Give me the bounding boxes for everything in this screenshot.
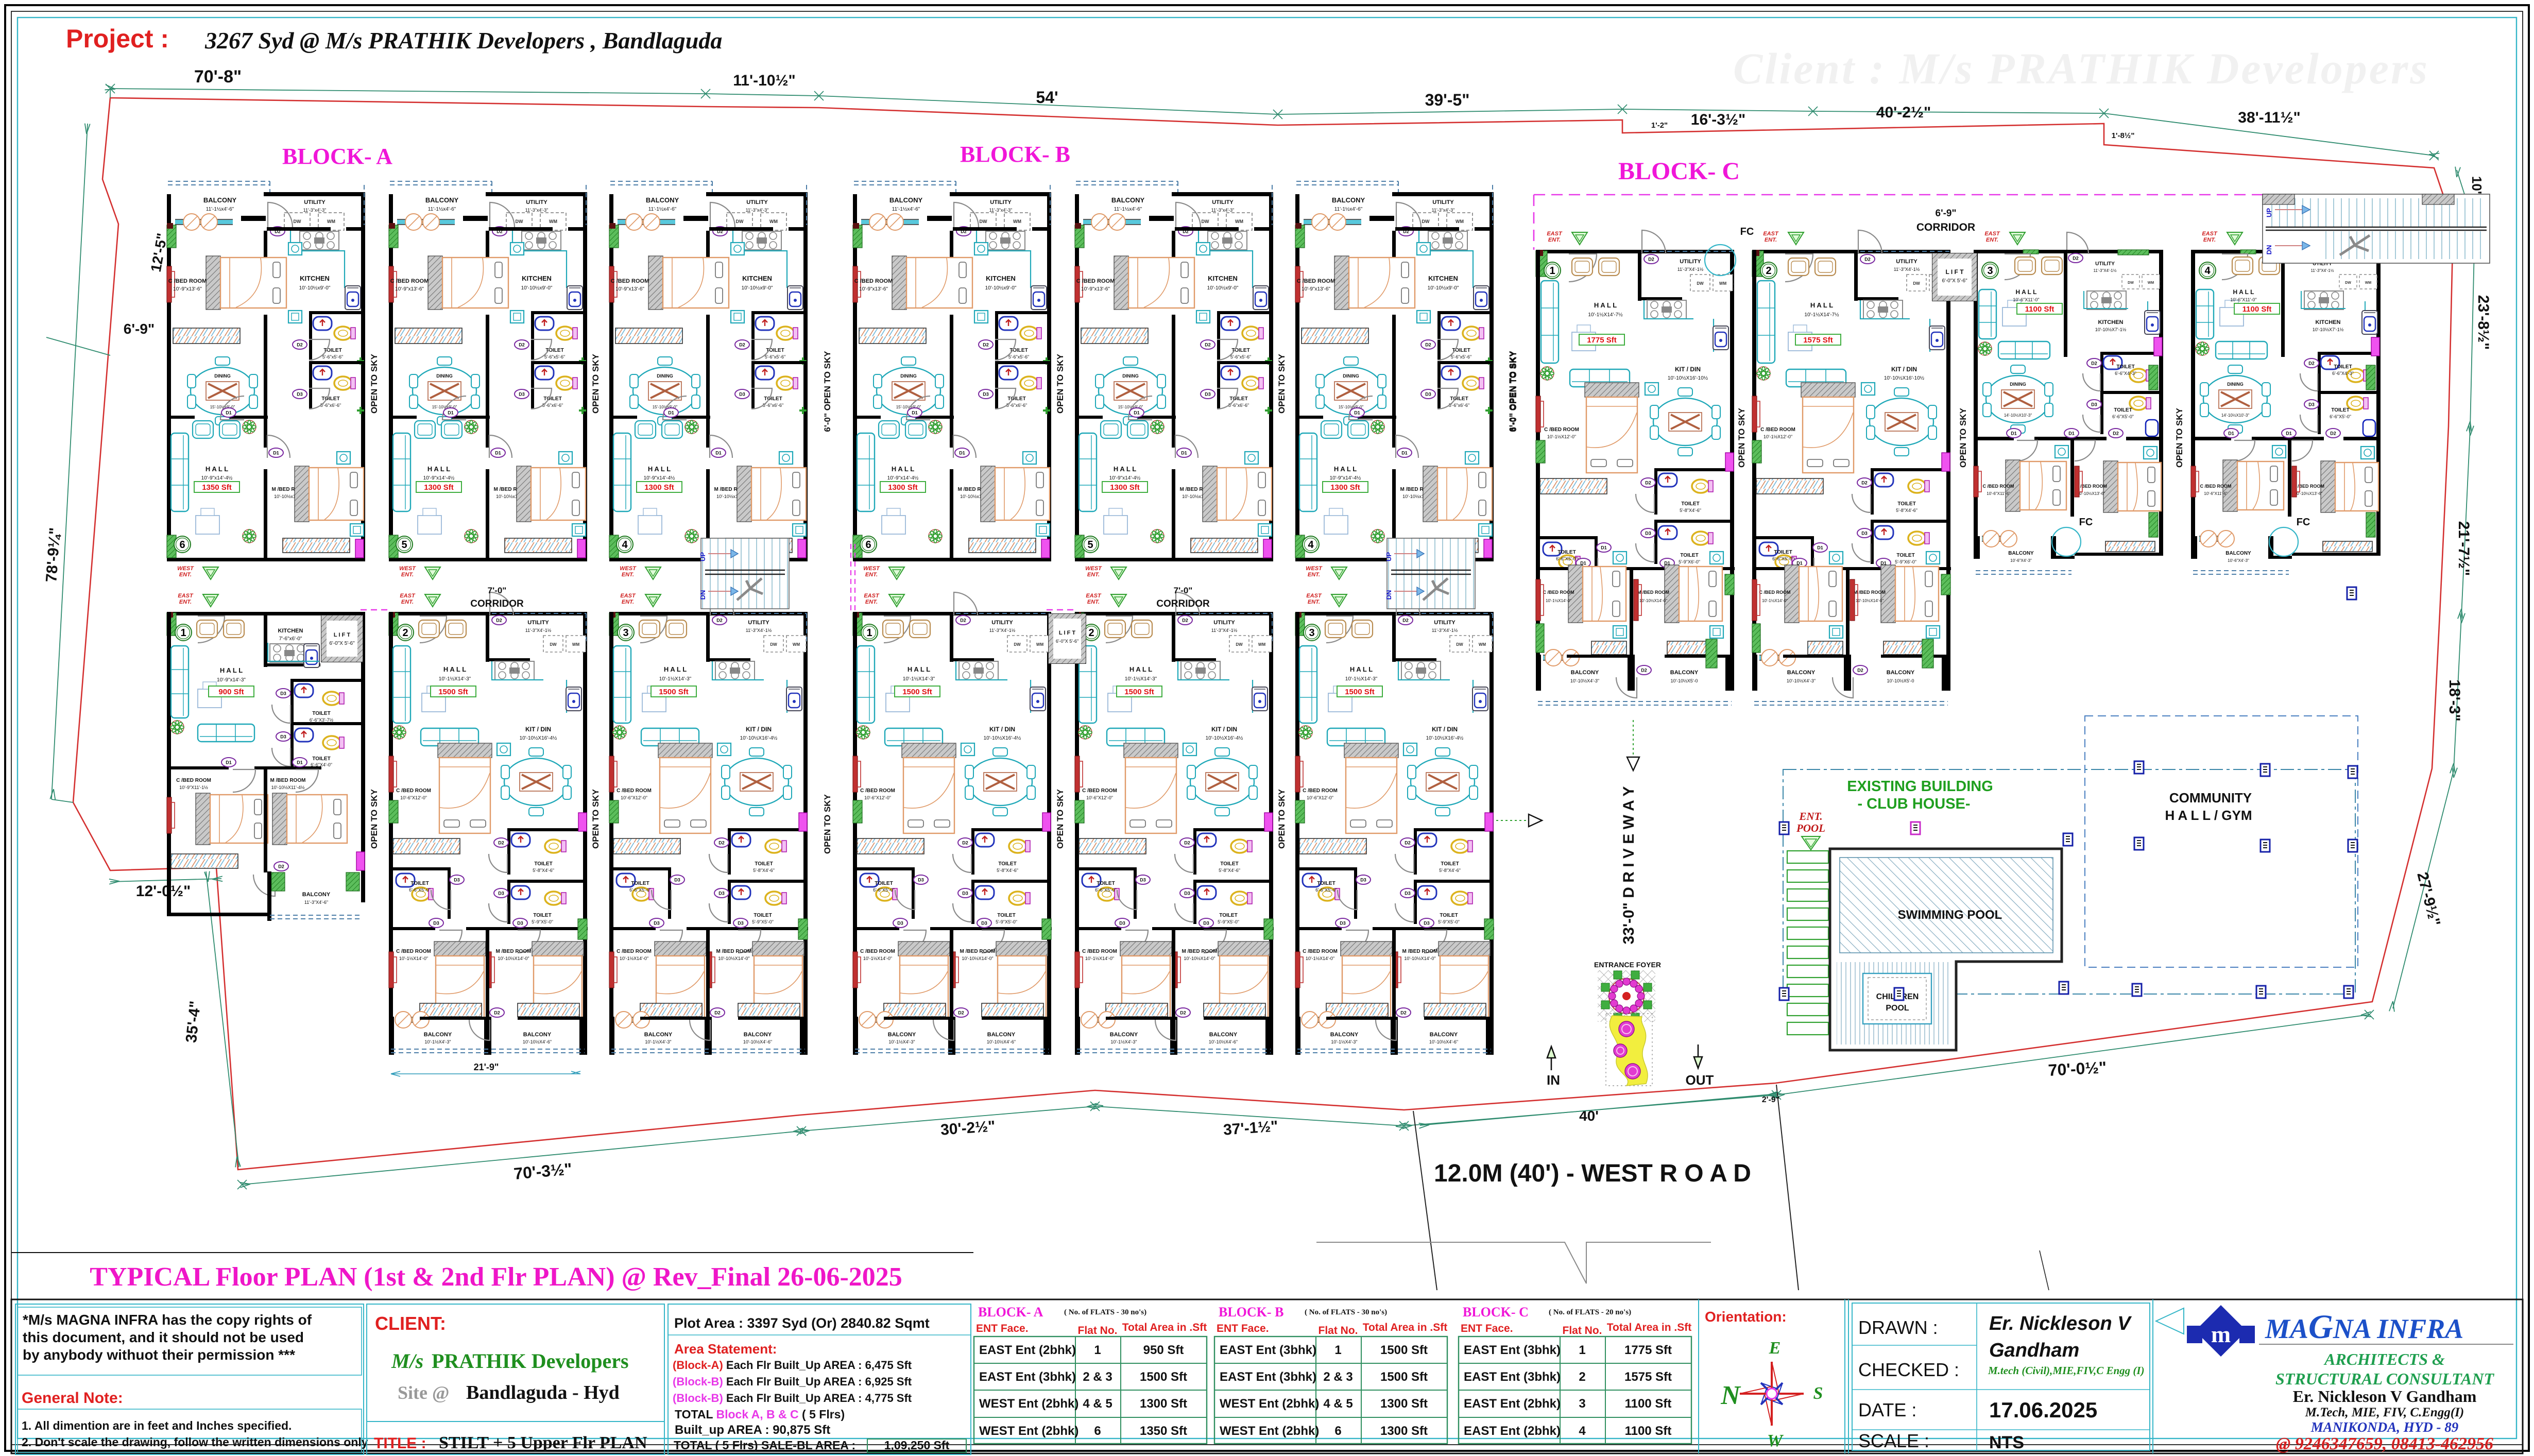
svg-text:( No. of FLATS - 30 no's): ( No. of FLATS - 30 no's) — [1305, 1308, 1387, 1316]
svg-text:EXISTING BUILDING: EXISTING BUILDING — [1847, 778, 1993, 795]
svg-text:17.06.2025: 17.06.2025 — [1989, 1398, 2097, 1422]
svg-text:1500 Sft: 1500 Sft — [1140, 1370, 1187, 1384]
svg-text:CLIENT:: CLIENT: — [375, 1313, 446, 1334]
svg-text:OPEN TO SKY: OPEN TO SKY — [591, 353, 601, 414]
svg-text:ENT.: ENT. — [401, 599, 414, 605]
svg-text:OUT: OUT — [1686, 1072, 1714, 1088]
svg-text:ENT.: ENT. — [622, 572, 634, 578]
svg-text:EAST Ent (2bhk): EAST Ent (2bhk) — [1464, 1397, 1561, 1411]
svg-text:1300 Sft: 1300 Sft — [1330, 483, 1360, 492]
svg-text:ENT.: ENT. — [2203, 237, 2216, 243]
svg-text:3: 3 — [1579, 1397, 1585, 1411]
svg-text:5: 5 — [401, 539, 407, 551]
svg-text:4: 4 — [1579, 1424, 1586, 1438]
svg-text:ENT.: ENT. — [865, 599, 878, 605]
svg-text:1500 Sft: 1500 Sft — [438, 688, 468, 696]
svg-text:BLOCK- C: BLOCK- C — [1463, 1305, 1529, 1320]
svg-text:EAST: EAST — [178, 593, 194, 599]
svg-text:ENT Face.: ENT Face. — [976, 1323, 1029, 1334]
svg-text:1500 Sft: 1500 Sft — [659, 688, 689, 696]
svg-text:ENT Face.: ENT Face. — [1461, 1323, 1513, 1334]
svg-text:EAST: EAST — [1086, 593, 1102, 599]
svg-text:3: 3 — [1309, 627, 1314, 639]
svg-text:S: S — [1813, 1384, 1823, 1403]
svg-text:WEST: WEST — [863, 566, 880, 572]
svg-text:FC: FC — [2297, 517, 2310, 528]
svg-text:Plot Area : 3397 Syd (Or) 2: Plot Area : 3397 Syd (Or) 2840.82 Sqmt — [674, 1315, 930, 1331]
svg-text:4 & 5: 4 & 5 — [1083, 1397, 1112, 1411]
svg-text:WEST Ent (2bhk): WEST Ent (2bhk) — [1220, 1397, 1319, 1411]
svg-text:EAST Ent (3bhk): EAST Ent (3bhk) — [1464, 1370, 1561, 1384]
svg-text:1. All dimention are in feet a: 1. All dimention are in feet and Inches … — [22, 1419, 292, 1432]
svg-text:FC: FC — [2079, 517, 2093, 528]
svg-text:1300 Sft: 1300 Sft — [1380, 1397, 1428, 1411]
svg-text:Total Area in .Sft: Total Area in .Sft — [1607, 1322, 1692, 1333]
svg-text:OPEN TO SKY: OPEN TO SKY — [1737, 407, 1747, 468]
svg-text:Site @: Site @ — [398, 1382, 449, 1403]
svg-text:1500 Sft: 1500 Sft — [1124, 688, 1154, 696]
svg-text:OPEN TO SKY: OPEN TO SKY — [591, 789, 601, 849]
svg-text:SWIMMING POOL: SWIMMING POOL — [1898, 908, 2002, 922]
svg-text:54': 54' — [1036, 88, 1058, 107]
svg-text:TYPICAL Floor PLAN (1st & 2n: TYPICAL Floor PLAN (1st & 2nd Flr PLAN) … — [90, 1262, 902, 1292]
svg-text:21'-9": 21'-9" — [474, 1062, 499, 1072]
svg-text:POOL: POOL — [1796, 822, 1825, 834]
svg-text:TITLE :: TITLE : — [374, 1435, 426, 1452]
svg-text:1775 Sft: 1775 Sft — [1624, 1343, 1672, 1357]
svg-text:1: 1 — [1334, 1343, 1341, 1357]
svg-text:6'-0" OPEN TO SKY: 6'-0" OPEN TO SKY — [1508, 351, 1517, 432]
svg-text:Orientation:: Orientation: — [1705, 1309, 1787, 1325]
svg-text:WEST: WEST — [177, 566, 194, 572]
svg-text:1: 1 — [1549, 265, 1555, 277]
svg-text:H A L L / GYM: H A L L / GYM — [2165, 808, 2252, 823]
svg-text:6: 6 — [865, 539, 871, 551]
svg-text:OPEN TO SKY: OPEN TO SKY — [1055, 353, 1065, 414]
svg-text:70'-0½": 70'-0½" — [2048, 1058, 2107, 1080]
svg-text:1: 1 — [1579, 1343, 1585, 1357]
svg-text:BLOCK- B: BLOCK- B — [960, 142, 1070, 167]
svg-text:POOL: POOL — [1886, 1004, 1909, 1013]
svg-text:CORRIDOR: CORRIDOR — [1156, 598, 1210, 609]
svg-text:Total Area in .Sft: Total Area in .Sft — [1122, 1322, 1207, 1333]
svg-text:3: 3 — [1987, 265, 1993, 277]
svg-text:ENT.: ENT. — [1765, 237, 1777, 243]
svg-text:2: 2 — [402, 627, 408, 639]
svg-text:1775 Sft: 1775 Sft — [1587, 336, 1617, 345]
svg-text:- CLUB HOUSE-: - CLUB HOUSE- — [1857, 796, 1970, 812]
svg-text:2 & 3: 2 & 3 — [1323, 1370, 1352, 1384]
svg-text:EAST Ent (3bhk): EAST Ent (3bhk) — [1220, 1370, 1316, 1384]
svg-text:MAGNA INFRA: MAGNA INFRA — [2265, 1308, 2463, 1346]
svg-text:6: 6 — [1094, 1424, 1101, 1438]
svg-text:OPEN TO SKY: OPEN TO SKY — [1277, 789, 1287, 849]
svg-text:BLOCK- A: BLOCK- A — [282, 144, 392, 169]
svg-text:21'-7½": 21'-7½" — [2455, 521, 2472, 576]
svg-text:EAST: EAST — [1763, 231, 1779, 237]
svg-text:ENT.: ENT. — [1087, 572, 1100, 578]
svg-text:1100 Sft: 1100 Sft — [2242, 305, 2272, 314]
svg-text:Project :: Project : — [66, 24, 169, 53]
svg-text:ENT.: ENT. — [1986, 237, 1998, 243]
svg-text:Bandlaguda - Hyd: Bandlaguda - Hyd — [466, 1382, 620, 1403]
svg-text:OPEN TO SKY: OPEN TO SKY — [1958, 407, 1968, 468]
svg-text:ENT.: ENT. — [1087, 599, 1100, 605]
svg-text:PRATHIK Developers: PRATHIK Developers — [432, 1349, 629, 1373]
svg-text:ENT.: ENT. — [1308, 572, 1320, 578]
svg-text:EAST: EAST — [400, 593, 416, 599]
svg-text:1500 Sft: 1500 Sft — [1380, 1343, 1428, 1357]
svg-text:CHECKED :: CHECKED : — [1858, 1359, 1959, 1380]
svg-text:ENTRANCE FOYER: ENTRANCE FOYER — [1594, 961, 1661, 969]
svg-text:7'-0": 7'-0" — [488, 586, 507, 595]
svg-text:WEST: WEST — [620, 566, 637, 572]
svg-text:DRAWN :: DRAWN : — [1858, 1317, 1938, 1338]
svg-text:EAST: EAST — [864, 593, 880, 599]
svg-text:1100 Sft: 1100 Sft — [1625, 1424, 1672, 1438]
svg-text:WEST Ent (2bhk): WEST Ent (2bhk) — [979, 1424, 1078, 1438]
svg-text:*M/s MAGNA INFRA has the copy: *M/s MAGNA INFRA has the copy rights of — [23, 1312, 312, 1328]
svg-text:(Block-A) Each Flr Built_Up AR: (Block-A) Each Flr Built_Up AREA : 6,475… — [673, 1359, 912, 1372]
svg-text:1: 1 — [1094, 1343, 1101, 1357]
svg-text:4 & 5: 4 & 5 — [1323, 1397, 1352, 1411]
svg-text:1300 Sft: 1300 Sft — [424, 483, 454, 492]
svg-text:M.Tech, MIE, FIV, C.Engg(I): M.Tech, MIE, FIV, C.Engg(I) — [2305, 1406, 2464, 1419]
svg-text:1: 1 — [866, 627, 872, 639]
svg-text:WEST: WEST — [399, 566, 416, 572]
svg-text:WEST Ent (2bhk): WEST Ent (2bhk) — [1220, 1424, 1319, 1438]
svg-text:6: 6 — [179, 539, 185, 551]
svg-text:1500 Sft: 1500 Sft — [1345, 688, 1375, 696]
svg-text:WEST: WEST — [1306, 566, 1323, 572]
svg-text:Built_up AREA : 90,875 Sft: Built_up AREA : 90,875 Sft — [675, 1423, 830, 1437]
svg-text:m: m — [2211, 1321, 2231, 1347]
svg-text:FC: FC — [1740, 226, 1754, 237]
svg-text:1300 Sft: 1300 Sft — [1110, 483, 1140, 492]
svg-text:EAST: EAST — [620, 593, 636, 599]
svg-text:6'-9": 6'-9" — [1936, 208, 1957, 219]
svg-text:ENT.: ENT. — [865, 572, 878, 578]
svg-text:2: 2 — [1766, 265, 1771, 277]
svg-text:Flat No.: Flat No. — [1563, 1325, 1602, 1337]
svg-text:this document, and it should n: this document, and it should not be used — [23, 1329, 304, 1345]
svg-text:6: 6 — [1334, 1424, 1341, 1438]
svg-text:EAST Ent (2bhk): EAST Ent (2bhk) — [1464, 1424, 1561, 1438]
svg-text:(Block-B) Each Flr Built_Up AR: (Block-B) Each Flr Built_Up AREA : 4,775… — [673, 1392, 912, 1404]
svg-text:EAST: EAST — [2202, 231, 2218, 237]
svg-text:16'-3½": 16'-3½" — [1691, 111, 1745, 128]
svg-text:2: 2 — [1088, 627, 1094, 639]
svg-text:OPEN TO SKY: OPEN TO SKY — [1055, 789, 1065, 849]
svg-text:by anybody withuot their permi: by anybody withuot their permission *** — [23, 1347, 295, 1363]
svg-text:ENT.: ENT. — [401, 572, 414, 578]
svg-text:EAST Ent (3bhk): EAST Ent (3bhk) — [979, 1370, 1076, 1384]
svg-text:BLOCK- C: BLOCK- C — [1618, 158, 1740, 185]
svg-text:6'-0"X 5'-6": 6'-0"X 5'-6" — [1056, 639, 1078, 644]
svg-text:EAST Ent (3bhk): EAST Ent (3bhk) — [1464, 1343, 1561, 1357]
svg-text:1500 Sft: 1500 Sft — [1380, 1370, 1428, 1384]
svg-text:Gandham: Gandham — [1989, 1340, 2079, 1361]
svg-text:3: 3 — [623, 627, 628, 639]
svg-text:Er. Nickleson V Gandham: Er. Nickleson V Gandham — [2293, 1387, 2477, 1406]
svg-text:6'-0" OPEN TO SKY: 6'-0" OPEN TO SKY — [823, 351, 832, 432]
svg-text:4: 4 — [1308, 539, 1314, 551]
svg-text:TOTAL ( 5 Flrs) SALE-BL AREA :: TOTAL ( 5 Flrs) SALE-BL AREA : — [674, 1438, 855, 1452]
svg-text:OPEN TO SKY: OPEN TO SKY — [369, 789, 379, 849]
svg-text:2: 2 — [1579, 1370, 1585, 1384]
svg-text:Client : M/s PRATHIK Developer: Client : M/s PRATHIK Developers — [1733, 44, 2429, 93]
svg-text:40'-2½": 40'-2½" — [1876, 104, 1931, 121]
svg-text:1350 Sft: 1350 Sft — [1140, 1424, 1187, 1438]
svg-text:1100 Sft: 1100 Sft — [1625, 1397, 1672, 1411]
svg-text:( No. of FLATS - 20 no's): ( No. of FLATS - 20 no's) — [1549, 1308, 1631, 1316]
svg-text:L I F T: L I F T — [1059, 630, 1075, 636]
svg-text:WEST Ent (2bhk): WEST Ent (2bhk) — [979, 1397, 1078, 1411]
svg-text:900 Sft: 900 Sft — [218, 688, 244, 696]
svg-text:6'-9": 6'-9" — [124, 321, 155, 337]
svg-text:5: 5 — [1087, 539, 1093, 551]
svg-text:OPEN TO SKY: OPEN TO SKY — [369, 353, 379, 414]
svg-text:@ 9246347659, 08413-462956: @ 9246347659, 08413-462956 — [2276, 1434, 2493, 1453]
svg-text:1575 Sft: 1575 Sft — [1624, 1370, 1672, 1384]
svg-text:(Block-B) Each Flr Built_Up AR: (Block-B) Each Flr Built_Up AREA : 6,925… — [673, 1375, 912, 1388]
svg-text:12.0M (40') - WEST R O A D: 12.0M (40') - WEST R O A D — [1434, 1160, 1751, 1187]
svg-text:COMMUNITY: COMMUNITY — [2169, 790, 2252, 806]
svg-text:Er. Nickleson V: Er. Nickleson V — [1989, 1313, 2132, 1334]
svg-text:950 Sft: 950 Sft — [1143, 1343, 1184, 1357]
svg-text:General Note:: General Note: — [22, 1390, 123, 1407]
svg-text:33'-0" D R I V E W A Y: 33'-0" D R I V E W A Y — [1620, 786, 1637, 945]
svg-text:7'-0": 7'-0" — [1174, 586, 1193, 595]
svg-text:1500 Sft: 1500 Sft — [902, 688, 932, 696]
svg-text:ENT Face.: ENT Face. — [1217, 1323, 1269, 1334]
svg-text:18'-3": 18'-3" — [2446, 679, 2463, 721]
svg-text:CORRIDOR: CORRIDOR — [470, 598, 524, 609]
svg-text:SCALE :: SCALE : — [1858, 1430, 1929, 1451]
svg-text:BLOCK- A: BLOCK- A — [978, 1305, 1043, 1320]
svg-text:12'-0½": 12'-0½" — [136, 883, 191, 900]
svg-text:38'-11½": 38'-11½" — [2238, 109, 2300, 126]
svg-text:ENT.: ENT. — [1548, 237, 1561, 243]
svg-text:Area Statement:: Area Statement: — [674, 1341, 777, 1357]
svg-text:ENT.: ENT. — [179, 572, 192, 578]
svg-text:ENT.: ENT. — [179, 599, 192, 605]
svg-text:Flat No.: Flat No. — [1078, 1325, 1118, 1337]
svg-text:1350 Sft: 1350 Sft — [202, 483, 232, 492]
svg-text:WEST: WEST — [1085, 566, 1102, 572]
svg-text:OPEN TO SKY: OPEN TO SKY — [2175, 407, 2184, 468]
svg-text:( No. of FLATS - 30 no's): ( No. of FLATS - 30 no's) — [1064, 1308, 1146, 1316]
svg-text:11'-10½": 11'-10½" — [733, 72, 795, 89]
svg-text:OPEN TO SKY: OPEN TO SKY — [1277, 353, 1287, 414]
svg-text:2 & 3: 2 & 3 — [1083, 1370, 1112, 1384]
svg-text:MANIKONDA, HYD - 89: MANIKONDA, HYD - 89 — [2310, 1419, 2459, 1435]
svg-text:Total Area in .Sft: Total Area in .Sft — [1363, 1322, 1448, 1333]
svg-text:BLOCK- B: BLOCK- B — [1219, 1305, 1283, 1320]
svg-text:4: 4 — [622, 539, 628, 551]
svg-text:OPEN TO SKY: OPEN TO SKY — [823, 794, 832, 854]
svg-text:M.tech (Civil),MIE,FIV,C Engg: M.tech (Civil),MIE,FIV,C Engg (I) — [1988, 1364, 2145, 1377]
svg-text:70'-8": 70'-8" — [194, 67, 242, 87]
svg-text:TOTAL Block A, B & C ( 5 Flrs): TOTAL Block A, B & C ( 5 Flrs) — [675, 1408, 845, 1421]
svg-text:6'-0"X 5'-6": 6'-0"X 5'-6" — [1942, 278, 1967, 284]
svg-text:2. Don't scale the drawing, fo: 2. Don't scale the drawing, follow the w… — [22, 1435, 368, 1449]
svg-text:Flat No.: Flat No. — [1319, 1325, 1358, 1337]
svg-text:ENT.: ENT. — [1308, 599, 1320, 605]
svg-text:39'-5": 39'-5" — [1425, 91, 1470, 109]
svg-text:1300 Sft: 1300 Sft — [1140, 1397, 1187, 1411]
svg-text:IN: IN — [1547, 1072, 1560, 1088]
svg-text:1: 1 — [180, 627, 186, 639]
svg-text:1575 Sft: 1575 Sft — [1803, 336, 1833, 345]
svg-text:1300 Sft: 1300 Sft — [1380, 1424, 1428, 1438]
svg-text:NTS: NTS — [1989, 1433, 2024, 1452]
svg-text:ENT.: ENT. — [1799, 810, 1822, 823]
svg-text:DATE :: DATE : — [1858, 1399, 1916, 1420]
svg-text:ENT.: ENT. — [622, 599, 634, 605]
svg-text:1300 Sft: 1300 Sft — [888, 483, 918, 492]
svg-text:EAST Ent (3bhk): EAST Ent (3bhk) — [1220, 1343, 1316, 1357]
svg-text:W: W — [1767, 1431, 1784, 1450]
svg-text:E: E — [1769, 1339, 1781, 1358]
svg-text:CORRIDOR: CORRIDOR — [1916, 221, 1975, 233]
svg-text:1100 Sft: 1100 Sft — [2025, 305, 2054, 314]
svg-text:1'-2": 1'-2" — [1651, 121, 1668, 130]
svg-text:1'-8½": 1'-8½" — [2112, 131, 2135, 140]
svg-text:ARCHITECTS &: ARCHITECTS & — [2323, 1350, 2445, 1368]
svg-text:1,09,250 Sft: 1,09,250 Sft — [884, 1438, 950, 1452]
svg-text:N: N — [1720, 1381, 1741, 1410]
svg-text:1300 Sft: 1300 Sft — [644, 483, 674, 492]
svg-text:STILT + 5 Upper Flr PLAN: STILT + 5 Upper Flr PLAN — [439, 1433, 647, 1452]
svg-text:M/s: M/s — [391, 1349, 423, 1373]
svg-text:L I F T: L I F T — [1945, 268, 1964, 276]
svg-text:EAST: EAST — [1984, 231, 2000, 237]
svg-text:3267 Syd @ M/s PRATHIK Develop: 3267 Syd @ M/s PRATHIK Developers , Band… — [204, 27, 722, 54]
svg-text:EAST: EAST — [1547, 231, 1563, 237]
svg-text:STRUCTURAL CONSULTANT: STRUCTURAL CONSULTANT — [2275, 1369, 2495, 1388]
svg-text:EAST Ent (2bhk): EAST Ent (2bhk) — [979, 1343, 1076, 1357]
svg-text:4: 4 — [2204, 265, 2211, 277]
svg-text:23'-8½": 23'-8½" — [2475, 295, 2492, 350]
svg-text:EAST: EAST — [1306, 593, 1322, 599]
